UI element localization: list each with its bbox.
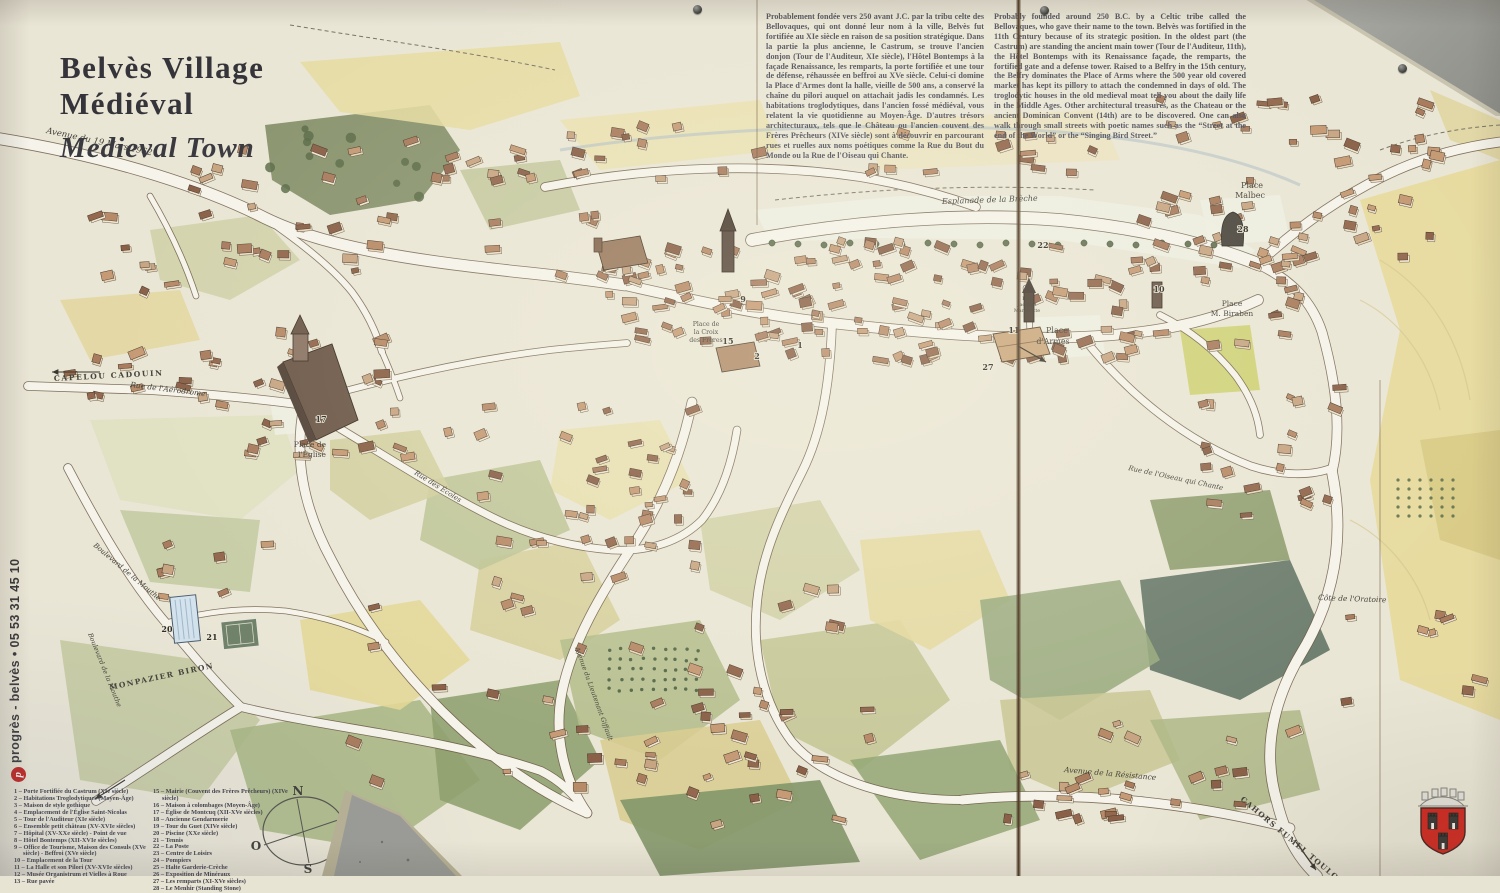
map-marker-22: 22 — [1037, 240, 1048, 250]
screw-icon — [1040, 6, 1049, 15]
title-french-line2: Médiéval — [60, 86, 264, 122]
map-marker-27: 27 — [982, 362, 993, 372]
intro-paragraph-french: Probablement fondée vers 250 avant J.C. … — [766, 12, 984, 161]
map-label-place: Place — [1046, 326, 1068, 335]
map-marker-11: 11 — [1008, 325, 1019, 335]
legend-item: 15 – Mairie (Couvent des Frères Prêcheur… — [153, 789, 295, 802]
panel-title: Belvès Village Médiéval Medieval Town — [60, 50, 264, 165]
map-label-d-armes: d'Armes — [1036, 337, 1069, 346]
screw-icon — [1398, 64, 1407, 73]
map-label-place-de: Place de — [693, 321, 720, 328]
legend-item: 13 – Rue pavée — [14, 879, 152, 886]
title-english: Medieval Town — [60, 132, 264, 165]
swimming-pool-icon — [170, 595, 201, 643]
map-marker-1: 1 — [797, 340, 803, 350]
coat-of-arms — [1408, 780, 1488, 872]
sign-photo: 129151710112220212728 Avenue du 19 Mars … — [0, 0, 1500, 876]
map-label-manchotte: Manchotte — [1014, 308, 1040, 314]
publisher-logo-icon: p — [11, 767, 26, 782]
legend-item: 28 – Le Menhir (Standing Stone) — [153, 886, 295, 893]
tennis-court-icon — [221, 618, 260, 650]
map-marker-20: 20 — [161, 624, 173, 634]
publisher-credit: pprogrès - belvès • 05 53 31 45 10 — [8, 552, 26, 782]
legend-column-1: 1 – Porte Fortifiée du Castrum (XIe sièc… — [14, 789, 152, 886]
map-label-des-fr-res: des Frères — [689, 337, 722, 344]
map-marker-10: 10 — [1153, 284, 1165, 294]
map-marker-28: 28 — [1237, 224, 1249, 234]
map-label-jacques: Jacques — [1017, 302, 1037, 308]
legend-item: 27 – Les remparts (XI-XVe siècles) — [153, 879, 295, 886]
intro-paragraph-english: Probably founded around 250 B.C. by a Ce… — [994, 12, 1246, 141]
map-marker-15: 15 — [722, 336, 733, 346]
screw-icon — [693, 5, 702, 14]
compass-label-s: S — [304, 862, 313, 876]
title-french-line1: Belvès Village — [60, 50, 264, 86]
map-marker-17: 17 — [315, 414, 326, 424]
legend-column-2: 15 – Mairie (Couvent des Frères Prêcheur… — [153, 789, 295, 893]
map-marker-21: 21 — [206, 632, 217, 642]
map-marker-2: 2 — [754, 351, 760, 361]
publisher-credit-text: progrès - belvès • 05 53 31 45 10 — [8, 559, 22, 764]
legend-item: 9 – Office de Tourisme, Maison des Consu… — [14, 845, 152, 858]
map-label-m-biraben: M. Biraben — [1211, 309, 1254, 318]
map-marker-9: 9 — [740, 294, 746, 304]
map-label-l-glise: l'Église — [298, 450, 326, 459]
mural-crown-icon — [1418, 788, 1468, 806]
map-label-rue: Rue — [1022, 296, 1032, 302]
map-label-malbec: Malbec — [1235, 191, 1265, 200]
map-label-place: Place — [1222, 299, 1243, 308]
map-label-place: Place — [1241, 181, 1263, 190]
map-label-la-croix: la Croix — [694, 329, 719, 336]
map-label-place-de: Place de — [294, 440, 327, 449]
